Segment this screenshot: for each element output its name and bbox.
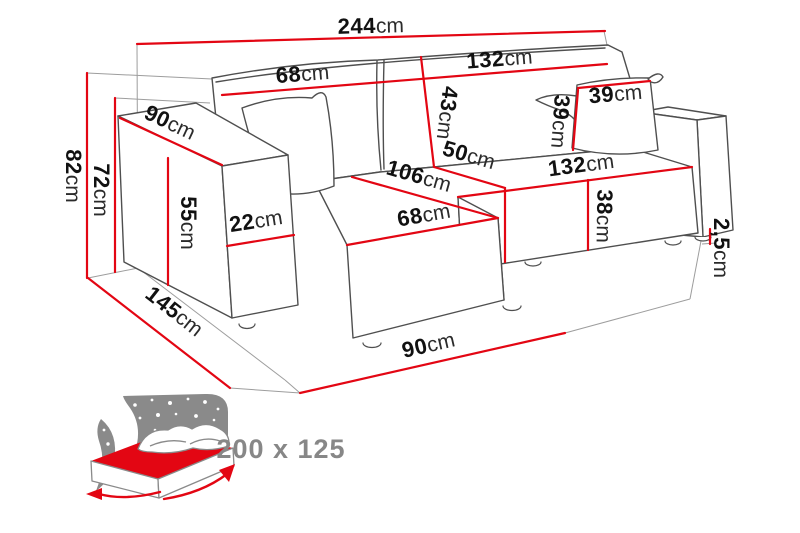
- label-chaise-footprint: 90cm: [399, 326, 457, 362]
- label-pillow-height: 39cm: [546, 94, 575, 149]
- label-armrest-height: 55cm: [176, 196, 201, 249]
- label-total-height: 82cm: [61, 149, 86, 202]
- diagram-canvas: 244cm 82cm 72cm 90cm 55cm 22cm 68cm 43cm…: [0, 0, 800, 533]
- sleeping-area-size: 200 x 125: [216, 434, 345, 464]
- label-seat-height: 38cm: [592, 189, 618, 243]
- label-pillow-width: 39cm: [588, 79, 643, 109]
- bed-arrow-head-left: [86, 488, 102, 500]
- label-backrest-right-width: 132cm: [465, 43, 533, 73]
- label-back-height: 72cm: [89, 163, 114, 216]
- label-backrest-left-width: 68cm: [275, 59, 330, 88]
- sofa-dimension-diagram: 244cm 82cm 72cm 90cm 55cm 22cm 68cm 43cm…: [0, 0, 800, 533]
- label-total-width: 244cm: [337, 12, 404, 39]
- sleeping-function-icon: 200 x 125: [86, 394, 346, 500]
- label-leg-height: 2,5cm: [709, 218, 734, 278]
- backrest-seam-2: [383, 60, 384, 169]
